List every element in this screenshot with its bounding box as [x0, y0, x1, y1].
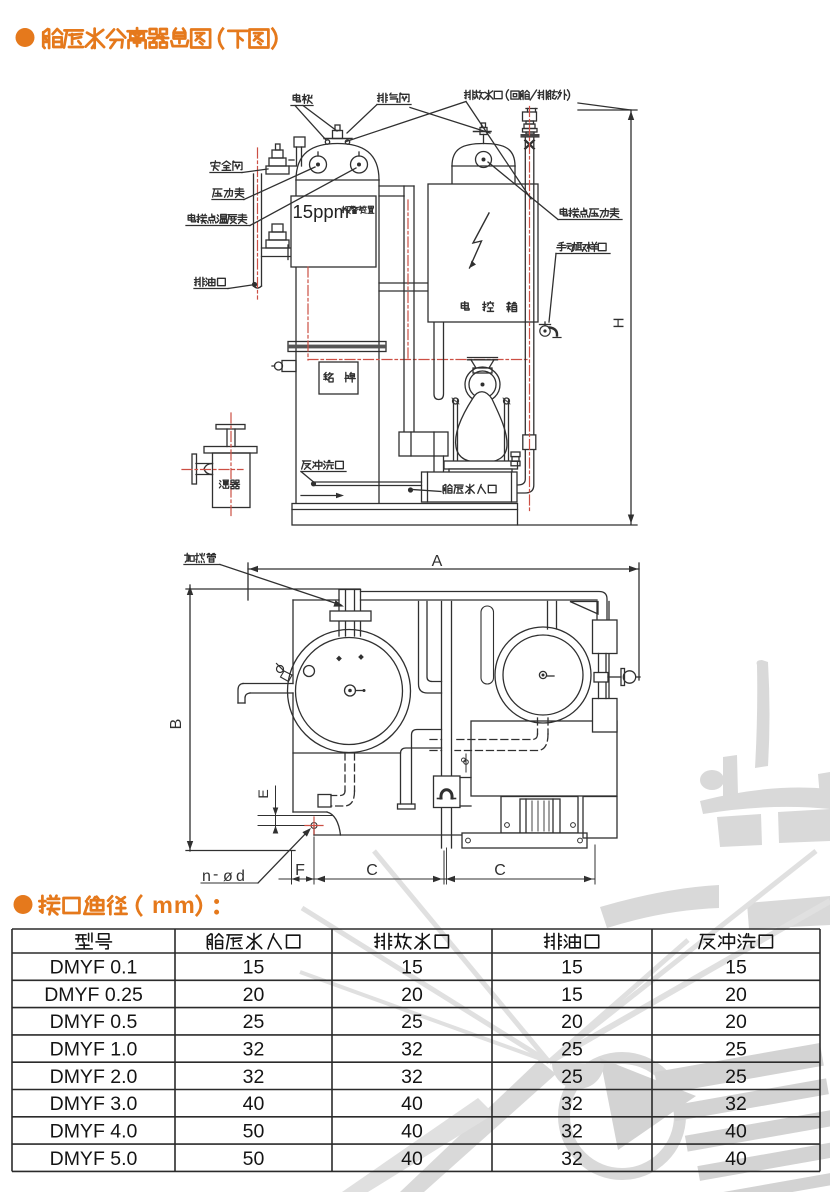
- svg-text:32: 32: [561, 1120, 583, 1142]
- svg-text:15ppm: 15ppm: [293, 201, 350, 222]
- svg-text:32: 32: [243, 1066, 265, 1088]
- svg-text:C: C: [366, 862, 378, 879]
- svg-text:C: C: [494, 862, 506, 879]
- svg-text:20: 20: [725, 1011, 747, 1033]
- svg-text:40: 40: [401, 1120, 423, 1142]
- svg-text:40: 40: [243, 1093, 265, 1115]
- svg-text:32: 32: [243, 1039, 265, 1061]
- svg-text:A: A: [432, 553, 443, 570]
- svg-text:DMYF 2.0: DMYF 2.0: [50, 1066, 138, 1088]
- svg-text:25: 25: [725, 1039, 747, 1061]
- svg-text:25: 25: [725, 1066, 747, 1088]
- svg-text:32: 32: [725, 1093, 747, 1115]
- svg-text:32: 32: [561, 1093, 583, 1115]
- svg-text:20: 20: [725, 984, 747, 1006]
- svg-text:15: 15: [243, 957, 265, 979]
- svg-text:32: 32: [401, 1066, 423, 1088]
- svg-text:15: 15: [401, 957, 423, 979]
- svg-text:40: 40: [725, 1148, 747, 1170]
- svg-text:25: 25: [561, 1066, 583, 1088]
- svg-text:E: E: [255, 789, 271, 798]
- svg-text:32: 32: [401, 1039, 423, 1061]
- svg-text:40: 40: [725, 1120, 747, 1142]
- svg-text:B: B: [168, 719, 185, 730]
- svg-text:20: 20: [401, 984, 423, 1006]
- svg-text:25: 25: [401, 1011, 423, 1033]
- svg-text:15: 15: [561, 957, 583, 979]
- svg-text:DMYF 3.0: DMYF 3.0: [50, 1093, 138, 1115]
- svg-text:d: d: [236, 868, 245, 885]
- svg-text:25: 25: [243, 1011, 265, 1033]
- svg-text:40: 40: [401, 1148, 423, 1170]
- svg-text:25: 25: [561, 1039, 583, 1061]
- svg-text:F: F: [295, 862, 305, 879]
- svg-text:DMYF 0.1: DMYF 0.1: [50, 957, 138, 979]
- svg-text:40: 40: [401, 1093, 423, 1115]
- svg-text:DMYF 5.0: DMYF 5.0: [50, 1148, 138, 1170]
- svg-text:20: 20: [243, 984, 265, 1006]
- svg-text:n: n: [202, 868, 211, 885]
- svg-text:DMYF 0.25: DMYF 0.25: [44, 984, 143, 1006]
- svg-text:DMYF 0.5: DMYF 0.5: [50, 1011, 138, 1033]
- svg-text:50: 50: [243, 1120, 265, 1142]
- svg-text:20: 20: [561, 1011, 583, 1033]
- svg-text:-: -: [213, 866, 218, 883]
- svg-text:50: 50: [243, 1148, 265, 1170]
- svg-text:DMYF 1.0: DMYF 1.0: [50, 1039, 138, 1061]
- svg-text:15: 15: [725, 957, 747, 979]
- svg-text:ø: ø: [223, 868, 233, 885]
- svg-text:DMYF 4.0: DMYF 4.0: [50, 1120, 138, 1142]
- svg-text:32: 32: [561, 1148, 583, 1170]
- svg-text:mm: mm: [152, 892, 196, 918]
- svg-text:15: 15: [561, 984, 583, 1006]
- svg-text:H: H: [611, 318, 628, 329]
